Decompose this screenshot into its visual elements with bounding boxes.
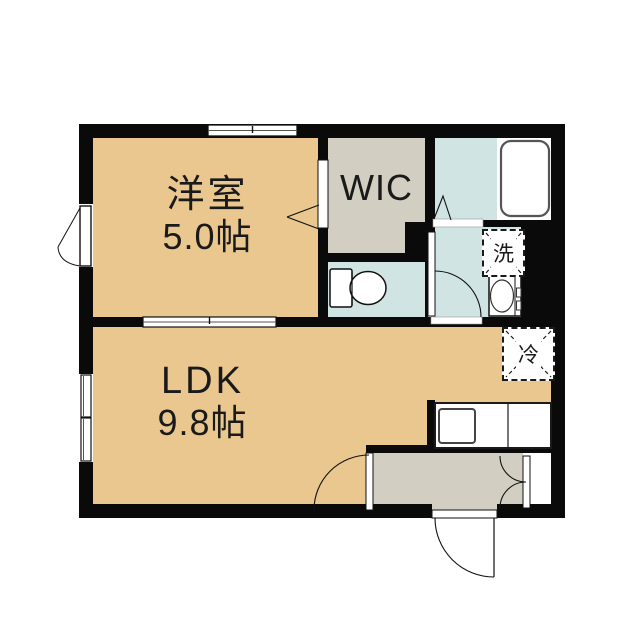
floor-plan: 洗 冷 洋室 5.0帖 LDK 9.8帖 WIC: [0, 0, 640, 640]
western-room-name: 洋室: [110, 174, 305, 217]
wall-outer-bottom-left: [79, 504, 432, 518]
bathtub-area: [497, 138, 551, 220]
wall-outer-right: [551, 124, 565, 518]
ldk-size: 9.8帖: [105, 403, 300, 443]
wall-outer-left: [79, 124, 93, 518]
western-room-label: 洋室 5.0帖: [110, 174, 305, 257]
kitchen-counter-icon: [435, 403, 551, 448]
entrance-hall-floor: [373, 453, 523, 510]
wall-below-wic: [328, 253, 435, 262]
entrance-door-icon: [432, 510, 497, 577]
wall-hall-top: [366, 445, 551, 453]
washer-pan-label: 洗: [491, 238, 516, 268]
pipe-space-block: [521, 227, 551, 317]
refrigerator-label: 冷: [516, 339, 541, 369]
wall-mid-horizontal: [93, 317, 551, 327]
wall-toilet-washroom-sliver: [425, 232, 428, 317]
wall-wic-notch: [405, 222, 425, 253]
room-toilet-floor: [328, 262, 425, 317]
wall-westernroom-right: [318, 138, 328, 327]
ldk-name: LDK: [105, 360, 300, 403]
entrance-closet-floor: [530, 453, 551, 510]
ldk-label: LDK 9.8帖: [105, 360, 300, 443]
wall-outer-bottom-right: [497, 504, 565, 518]
wic-label: WIC: [328, 168, 425, 208]
wall-wic-bath-divider: [425, 138, 435, 232]
western-room-size: 5.0帖: [110, 217, 305, 257]
room-bathroom-floor: [435, 138, 497, 220]
wall-bath-washroom-divider: [435, 220, 551, 227]
room-ldk-floor-mid: [366, 327, 427, 445]
washer-pan-box: 洗: [482, 229, 525, 277]
wall-outer-top: [79, 124, 565, 138]
refrigerator-space-box: 冷: [502, 327, 555, 381]
